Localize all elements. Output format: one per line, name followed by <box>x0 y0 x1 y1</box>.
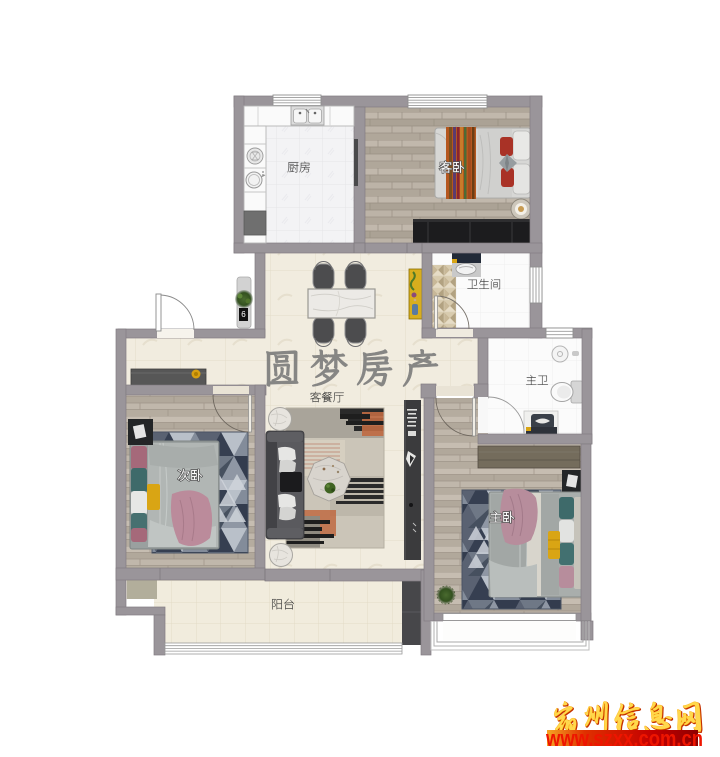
svg-text:www.szxx.com.cn: www.szxx.com.cn <box>545 726 703 751</box>
svg-text:6: 6 <box>241 310 246 319</box>
